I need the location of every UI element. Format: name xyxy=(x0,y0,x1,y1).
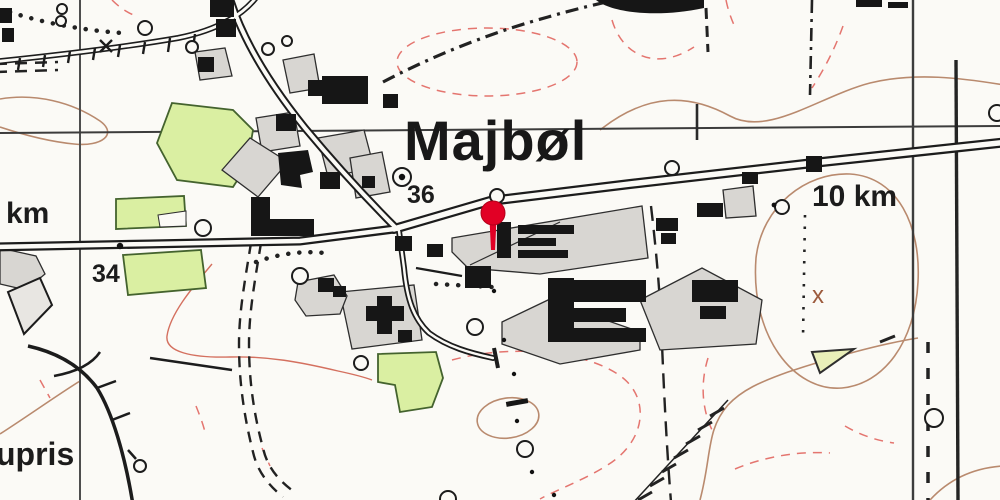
circle-symbol xyxy=(134,460,146,472)
left-edge-unit-label: km xyxy=(6,197,49,230)
track-layer xyxy=(0,0,895,500)
circle-symbol xyxy=(354,356,368,370)
map-viewport[interactable]: Majbøl 36 34 km 10 km upris x xyxy=(0,0,1000,500)
pin-head xyxy=(481,201,505,225)
spot-height-label: 36 xyxy=(407,181,435,209)
circle-symbol xyxy=(989,105,1000,121)
black-mass-top-right xyxy=(596,0,704,13)
circle-symbol xyxy=(282,36,292,46)
km-stone-east-label: 10 km xyxy=(812,180,897,213)
circle-symbol xyxy=(262,43,274,55)
field-4 xyxy=(378,352,443,412)
road-fill-layer xyxy=(0,0,1000,358)
circle-symbol xyxy=(292,268,308,284)
circle-symbol xyxy=(440,491,456,500)
km-post xyxy=(806,156,822,172)
circle-symbol xyxy=(925,409,943,427)
circle-symbol xyxy=(56,16,66,26)
circle-symbol xyxy=(57,4,67,14)
circle-symbol xyxy=(195,220,211,236)
map-canvas: Majbøl 36 34 km 10 km upris x xyxy=(0,0,1000,500)
circle-symbol xyxy=(665,161,679,175)
field-triangle xyxy=(812,349,854,373)
hill-cross-symbol: x xyxy=(812,282,824,309)
circle-symbol xyxy=(775,200,789,214)
bottom-left-partial-label: upris xyxy=(0,436,74,472)
circle-symbol xyxy=(517,441,533,457)
field-3 xyxy=(123,250,206,295)
road-right-edge xyxy=(956,60,958,500)
circle-symbol xyxy=(467,319,483,335)
circle-symbol xyxy=(186,41,198,53)
place-label: Majbøl xyxy=(404,109,587,172)
km-stone-west-label: 34 xyxy=(92,260,120,288)
circle-symbol xyxy=(138,21,152,35)
road-layer xyxy=(0,0,1000,358)
